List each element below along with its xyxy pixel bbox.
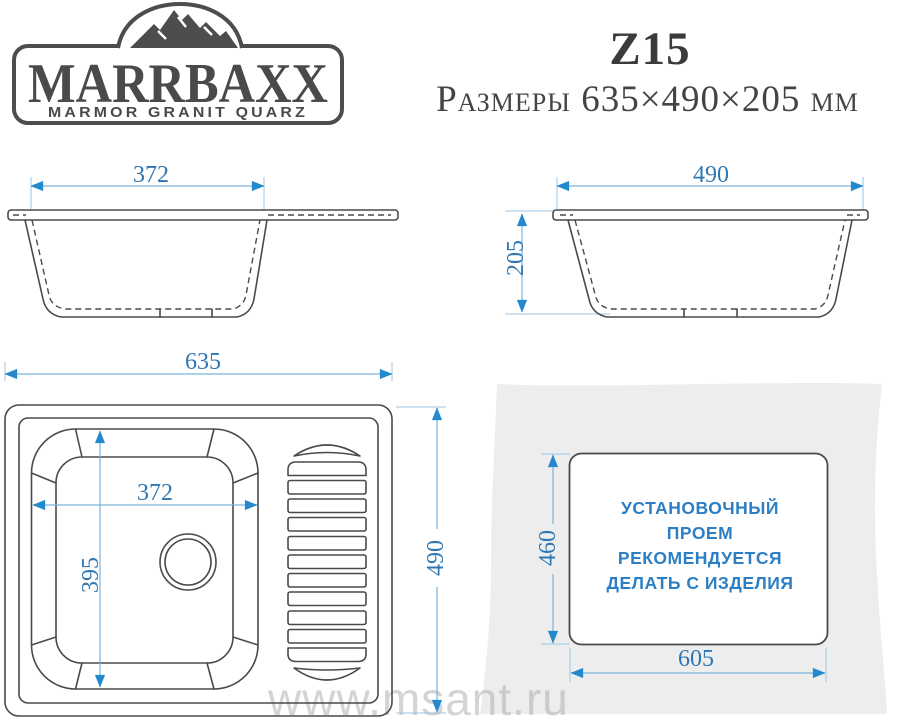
cutout-note-line3: РЕКОМЕНДУЕТСЯ: [618, 548, 782, 568]
side-bowl-hidden-outline: [575, 220, 845, 309]
side-view-drawing: 490 205: [503, 162, 868, 317]
front-view-drawing: 372: [8, 162, 398, 317]
side-height-label: 205: [503, 240, 529, 276]
side-bowl-outline: [568, 220, 852, 317]
bowl-outer-edge: [32, 429, 259, 689]
cutout-note-line1: УСТАНОВОЧНЫЙ: [621, 497, 779, 518]
cutout-width-label: 605: [678, 646, 714, 672]
sink-rim-inner-edge: [19, 418, 378, 703]
cutout-note-line4: ДЕЛАТЬ С ИЗДЕЛИЯ: [607, 573, 794, 593]
top-view-drawing: 635 490: [5, 349, 449, 716]
top-bowl-width-label: 372: [137, 480, 173, 506]
install-cutout-drawing: 460 605 УСТАНОВОЧНЫЙ ПРОЕМ РЕКОМЕНДУЕТСЯ…: [534, 454, 828, 683]
side-rim: [553, 210, 868, 220]
bowl-corner-chamfers: [32, 429, 259, 689]
side-width-label: 490: [693, 162, 729, 188]
drawing-sheet: www.msant.ru 372 490: [0, 0, 900, 721]
drain-hole-outer: [160, 534, 216, 590]
front-bowl-outline: [25, 220, 267, 317]
front-bowl-hidden-outline: [32, 220, 260, 309]
drain-hole-inner: [165, 539, 211, 585]
top-height-label: 490: [423, 540, 449, 576]
front-bowl-width-label: 372: [133, 162, 169, 188]
cutout-height-label: 460: [535, 530, 561, 566]
brand-logo: MARRBAXX MARMOR GRANIT QUARZ: [8, 2, 348, 130]
cutout-note-line2: ПРОЕМ: [667, 523, 733, 543]
drainboard-ribs: [288, 445, 366, 680]
top-bowl-length-label: 395: [78, 557, 104, 593]
top-width-label: 635: [185, 349, 221, 375]
logo-tagline-text: MARMOR GRANIT QUARZ: [48, 104, 308, 121]
